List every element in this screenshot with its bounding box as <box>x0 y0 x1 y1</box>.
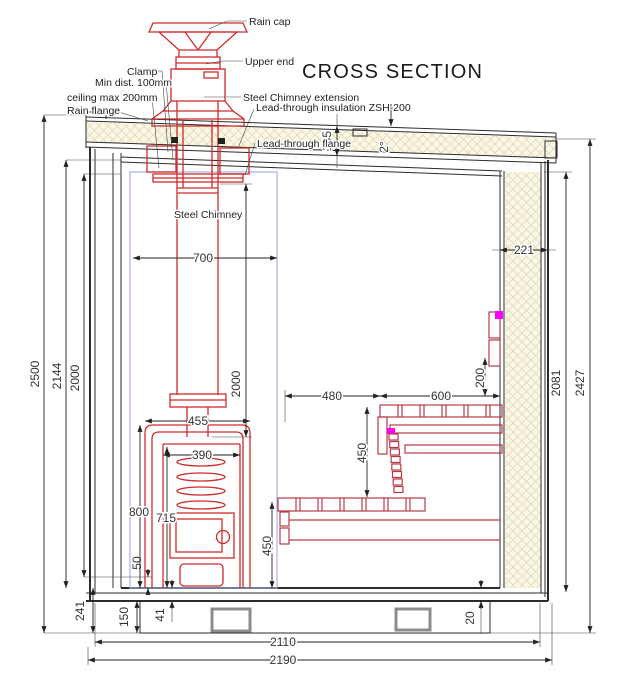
dim-text: 2190 <box>270 653 297 667</box>
dim-text: 450 <box>355 443 369 463</box>
dim-text: 2110 <box>270 635 296 649</box>
dim-bench-depth: 600 <box>380 389 500 403</box>
stove-ash-drawer <box>180 564 223 586</box>
dim-text: 2000 <box>229 370 243 397</box>
rain-cap <box>149 23 247 32</box>
dim-backrest-offset: 200 <box>473 358 487 396</box>
stove-stones <box>177 458 225 509</box>
dim-stove-inner-height: 715 <box>156 447 176 588</box>
label-lead-through-flange: Lead-through flange <box>257 138 351 150</box>
dim-floor-height: 150 <box>117 601 137 633</box>
dim-interior-height: 2144 <box>50 160 121 588</box>
label-upper-end: Upper end <box>245 56 294 68</box>
cross-section-page: 2500 2144 2000 700 2000 165 <box>0 0 631 675</box>
dim-text: 800 <box>129 505 149 519</box>
bench-leg <box>378 417 387 454</box>
dim-text: 715 <box>156 511 176 525</box>
dim-chimney-zone-width: 700 <box>133 251 277 265</box>
dim-stove-top-width: 455 <box>145 414 250 428</box>
dim-text: 2500 <box>28 360 42 387</box>
label-lead-through-insulation: Lead-through insulation ZSH-200 <box>256 102 411 114</box>
dim-text: 20 <box>463 611 477 625</box>
dim-text: 455 <box>188 414 208 428</box>
dim-text: 480 <box>322 389 342 403</box>
right-wall <box>500 160 548 601</box>
page-title: CROSS SECTION <box>302 61 483 83</box>
dim-lower-bench-height: 450 <box>260 502 274 588</box>
dim-text: 200 <box>473 368 487 388</box>
clamp-part <box>171 137 178 143</box>
stove-door <box>170 513 234 558</box>
label-ceiling-max: ceiling max 200mm <box>67 92 158 104</box>
dim-stove-bench-gap: 480 <box>285 389 380 422</box>
wall-backrest <box>489 311 503 366</box>
dim-firebox-width: 390 <box>163 448 240 462</box>
dim-text: 600 <box>431 389 451 403</box>
label-rain-cap: Rain cap <box>249 16 291 28</box>
label-steel-chimney: Steel Chimney <box>174 209 243 221</box>
leader-line <box>209 21 247 29</box>
dim-text: 2144 <box>50 362 64 389</box>
lower-bench <box>278 498 500 544</box>
bench-front-slats <box>389 434 403 493</box>
dim-text: 450 <box>260 536 274 556</box>
bench-leg <box>280 512 289 526</box>
dim-text: 241 <box>73 601 87 621</box>
dim-text: 50 <box>130 556 144 570</box>
dim-text: 2° <box>377 141 391 153</box>
magenta-marker <box>495 311 503 319</box>
dim-text: 2427 <box>573 369 587 396</box>
label-min-dist: Min dist. 100mm <box>95 77 172 89</box>
stove-door-handle <box>217 531 230 544</box>
dim-text: 390 <box>192 448 212 462</box>
dim-text: 221 <box>514 243 534 257</box>
left-wall <box>90 147 121 601</box>
cross-section-drawing: 2500 2144 2000 700 2000 165 <box>0 0 631 675</box>
magenta-marker <box>387 428 395 434</box>
bench-leg <box>280 528 289 544</box>
benches <box>278 311 503 544</box>
label-rain-flange: Rain flange <box>67 105 120 117</box>
dim-text: 2081 <box>549 369 563 396</box>
dim-text: 41 <box>153 608 167 622</box>
dim-text: 150 <box>117 607 131 627</box>
foundation-block <box>396 609 430 630</box>
chimney-extension-body <box>171 69 225 101</box>
upper-bench <box>378 405 502 493</box>
right-wall-insulation <box>505 172 541 588</box>
dim-bench-rise: 450 <box>355 407 369 497</box>
dim-text: 700 <box>193 251 213 265</box>
dim-right-wall-thickness: 221 <box>492 243 556 257</box>
clamp-part <box>218 138 225 144</box>
foundation-block <box>212 609 250 631</box>
dim-text: 2000 <box>68 364 82 391</box>
